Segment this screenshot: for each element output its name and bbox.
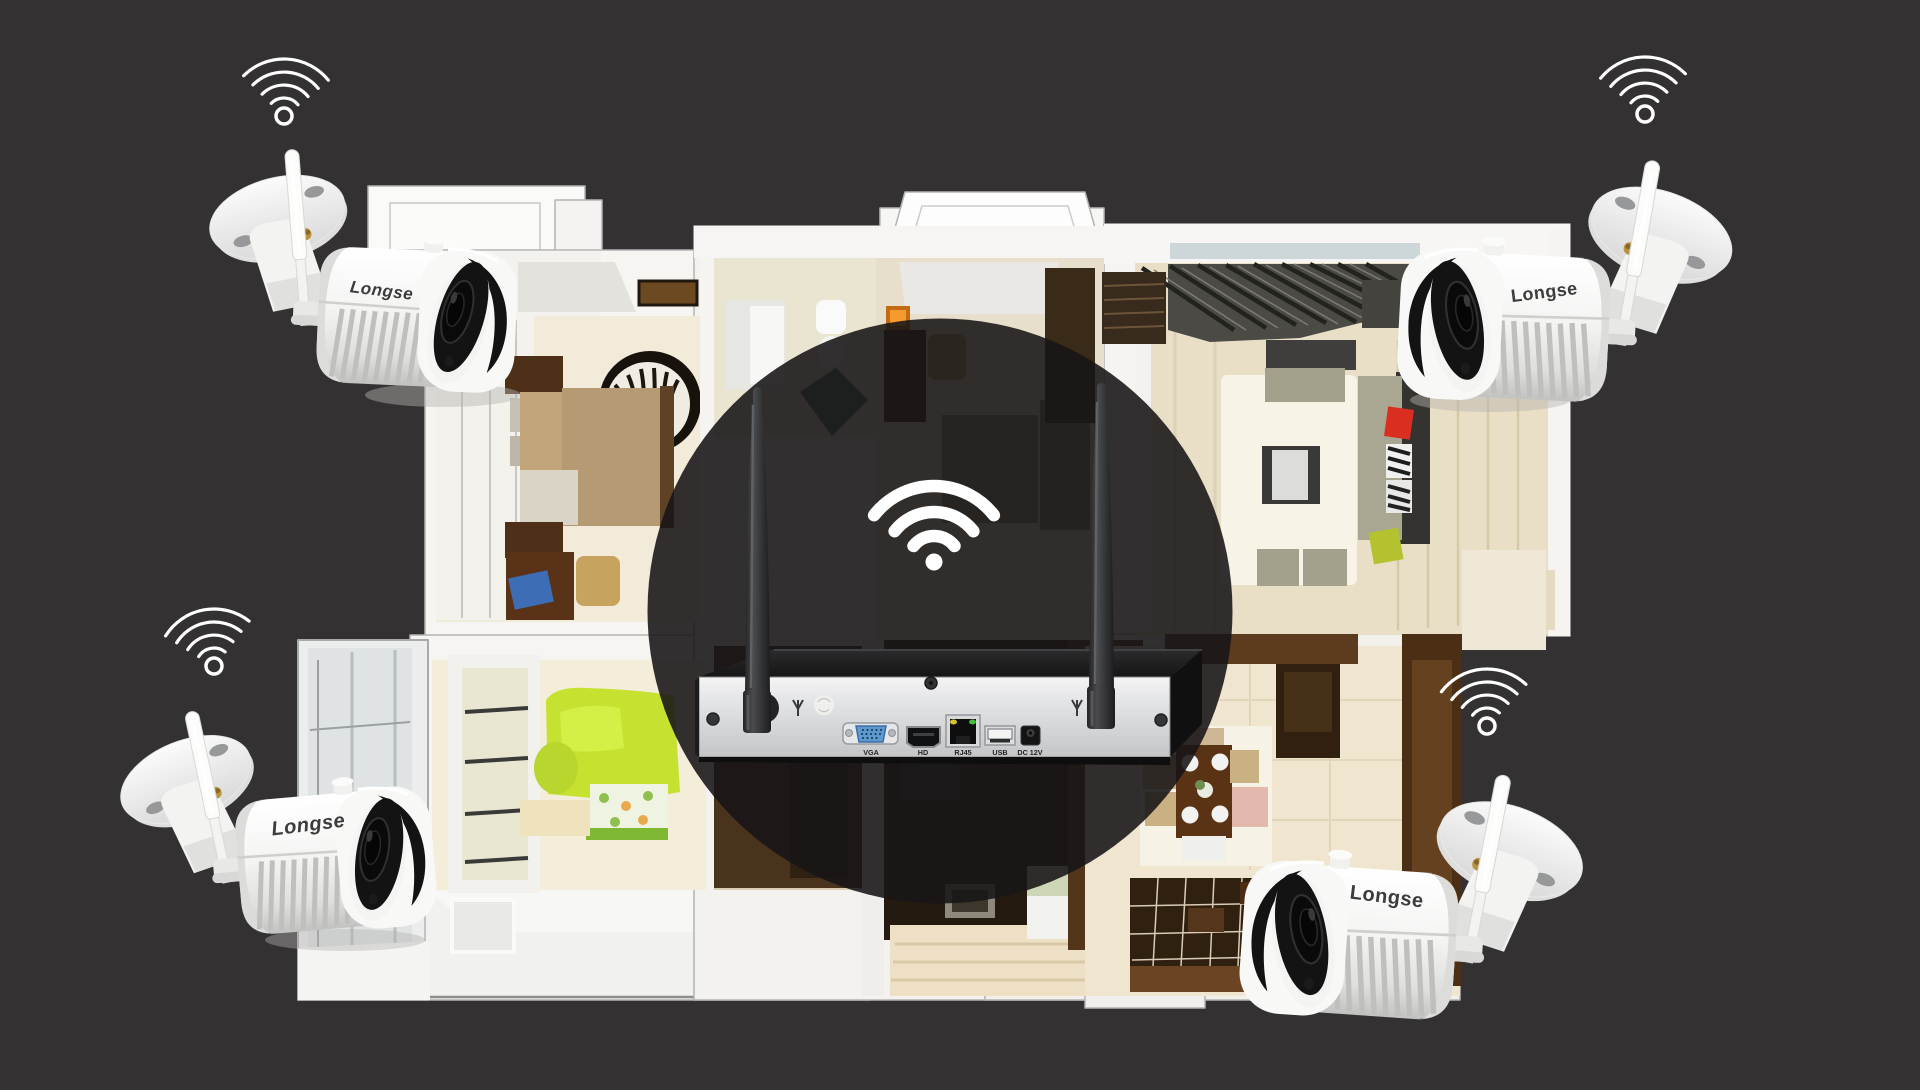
svg-text:VGA: VGA: [863, 748, 879, 757]
svg-text:HD: HD: [918, 748, 928, 757]
svg-text:USB: USB: [992, 748, 1007, 757]
svg-text:RJ45: RJ45: [954, 748, 971, 757]
svg-text:DC 12V: DC 12V: [1017, 748, 1042, 757]
